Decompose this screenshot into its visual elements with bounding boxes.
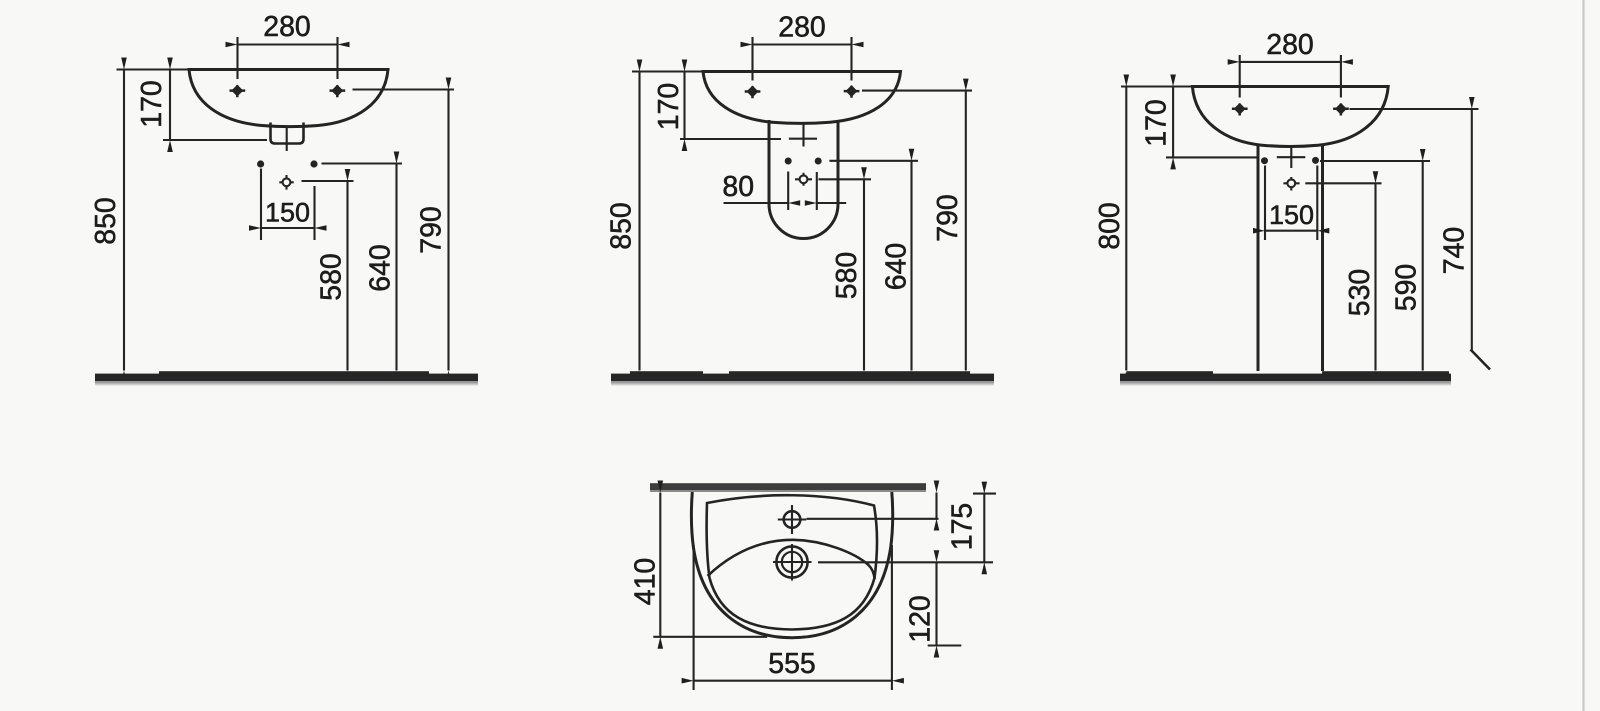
svg-text:790: 790 — [416, 206, 448, 254]
svg-text:170: 170 — [136, 80, 168, 128]
svg-text:580: 580 — [316, 253, 348, 301]
svg-text:530: 530 — [1344, 269, 1376, 317]
svg-text:800: 800 — [1094, 202, 1126, 250]
svg-text:150: 150 — [1269, 200, 1314, 230]
svg-text:790: 790 — [932, 194, 964, 242]
svg-text:280: 280 — [1266, 29, 1314, 61]
svg-text:850: 850 — [606, 202, 638, 250]
svg-text:555: 555 — [768, 648, 816, 680]
svg-text:850: 850 — [90, 197, 122, 245]
svg-text:740: 740 — [1438, 227, 1470, 275]
svg-text:170: 170 — [1140, 99, 1172, 147]
svg-text:120: 120 — [905, 595, 937, 643]
svg-text:590: 590 — [1390, 264, 1422, 312]
svg-text:150: 150 — [265, 198, 310, 228]
svg-text:175: 175 — [947, 503, 979, 551]
svg-text:170: 170 — [653, 83, 685, 131]
svg-text:280: 280 — [778, 12, 826, 44]
svg-text:640: 640 — [365, 244, 397, 292]
svg-text:580: 580 — [831, 252, 863, 300]
svg-text:80: 80 — [722, 171, 754, 203]
svg-text:280: 280 — [263, 11, 311, 43]
svg-text:640: 640 — [881, 243, 913, 291]
svg-text:410: 410 — [629, 558, 661, 606]
